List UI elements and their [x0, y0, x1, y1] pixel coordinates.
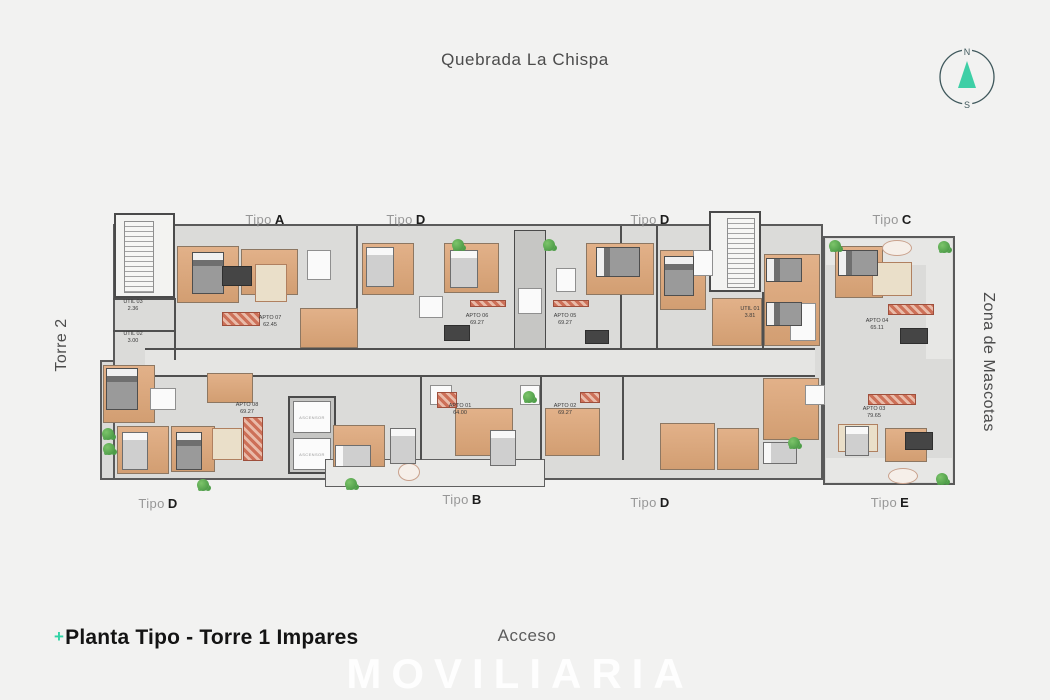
stairwell-east	[709, 211, 761, 292]
tipo-label-top-a: TipoA	[245, 212, 284, 227]
tipo-label-bottom-b: TipoB	[442, 492, 481, 507]
plant	[102, 428, 114, 440]
round-table	[888, 468, 918, 484]
page-title: +Planta Tipo - Torre 1 Impares	[54, 626, 358, 650]
kitchen-tile	[580, 392, 600, 403]
unit-label-apto-07: APTO 0762.45	[259, 315, 282, 329]
kitchen-tile	[243, 417, 263, 461]
access-label: Acceso	[498, 626, 557, 646]
compass-north-label: N	[964, 47, 971, 57]
bathroom	[693, 250, 713, 276]
tipo-label-top-d2: TipoD	[630, 212, 669, 227]
bed	[838, 250, 878, 276]
area-rug	[255, 264, 287, 302]
unit-label-apto-06: APTO 0669.27	[466, 313, 489, 327]
kitchen-tile	[868, 394, 916, 405]
bed	[490, 430, 516, 466]
bathroom	[307, 250, 331, 280]
bed	[450, 250, 478, 288]
unit-label-util-02: UTIL 023.00	[123, 331, 142, 345]
bed	[122, 432, 148, 470]
page-title-text: Planta Tipo - Torre 1 Impares	[65, 626, 358, 649]
plant	[543, 239, 555, 251]
unit-label-apto-08: APTO 0869.27	[236, 402, 259, 416]
unit-label-util-01: UTIL 013.81	[740, 306, 759, 320]
kitchen-tile	[470, 300, 506, 307]
stair-treads	[124, 221, 154, 293]
tipo-label-top-d1: TipoD	[386, 212, 425, 227]
tipo-label-bottom-d1: TipoD	[138, 496, 177, 511]
round-table	[882, 240, 912, 256]
compass-south-label: S	[964, 100, 970, 110]
plant	[829, 240, 841, 252]
elevator-label: ASCENSOR	[299, 452, 325, 457]
wood-room	[660, 423, 715, 470]
bed	[390, 428, 416, 464]
watermark: MOVILIARIA	[346, 650, 693, 698]
wall	[622, 375, 624, 460]
plant	[936, 473, 948, 485]
wall	[113, 330, 175, 332]
round-table	[398, 463, 420, 481]
side-label-zona-mascotas: Zona de Mascotas	[979, 292, 997, 432]
plant	[197, 479, 209, 491]
dining-table	[222, 266, 252, 286]
unit-label-apto-04: APTO 0465.11	[866, 318, 889, 332]
side-label-torre-2: Torre 2	[53, 318, 71, 371]
bathroom	[805, 385, 825, 405]
unit-label-apto-03: APTO 0379.65	[863, 406, 886, 420]
compass-icon: N S	[936, 42, 998, 112]
kitchen-tile	[888, 304, 934, 315]
wall	[113, 298, 175, 300]
stairwell-west	[114, 213, 175, 298]
plant	[523, 391, 535, 403]
bathroom	[150, 388, 176, 410]
dining-table	[585, 330, 609, 344]
dining-table	[444, 325, 470, 341]
bed	[366, 247, 394, 287]
area-rug	[872, 262, 912, 296]
dining-table	[900, 328, 928, 344]
unit-label-util-03: UTIL 032.36	[123, 299, 142, 313]
bed	[335, 445, 371, 467]
kitchen-tile	[553, 300, 589, 307]
plus-icon: +	[54, 627, 64, 646]
bathroom	[556, 268, 576, 292]
unit-label-apto-05: APTO 0569.27	[554, 313, 577, 327]
wood-room	[300, 308, 358, 348]
bed	[766, 302, 802, 326]
wall	[420, 375, 422, 460]
bed	[596, 247, 640, 277]
wood-room	[207, 373, 253, 403]
bed	[176, 432, 202, 470]
elevator-label: ASCENSOR	[299, 415, 325, 420]
bed	[664, 256, 694, 296]
stair-treads	[727, 218, 755, 288]
plant	[788, 437, 800, 449]
tipo-label-bottom-d2: TipoD	[630, 495, 669, 510]
wall	[656, 226, 658, 350]
wood-room	[717, 428, 759, 470]
tipo-label-top-c: TipoC	[872, 212, 911, 227]
area-rug	[212, 428, 242, 460]
bathroom	[419, 296, 443, 318]
terrace-tipo-c-east	[926, 239, 952, 359]
plant	[345, 478, 357, 490]
corridor-wall-north	[145, 348, 815, 350]
dining-table	[905, 432, 933, 450]
bed	[766, 258, 802, 282]
central-corridor	[145, 350, 815, 375]
bed	[192, 252, 224, 294]
plant	[103, 443, 115, 455]
wall	[540, 375, 542, 460]
plant	[938, 241, 950, 253]
plant	[452, 239, 464, 251]
bed	[845, 426, 869, 456]
street-label-quebrada: Quebrada La Chispa	[441, 50, 609, 70]
unit-label-apto-01: APTO 0164.00	[449, 403, 472, 417]
kitchen-tile	[222, 312, 260, 326]
tipo-label-bottom-e: TipoE	[871, 495, 910, 510]
unit-label-apto-02: APTO 0269.27	[554, 403, 577, 417]
bed	[106, 368, 138, 410]
elevator-cab-1: ASCENSOR	[293, 401, 331, 433]
wall	[174, 298, 176, 360]
laundry-cell	[518, 288, 542, 314]
